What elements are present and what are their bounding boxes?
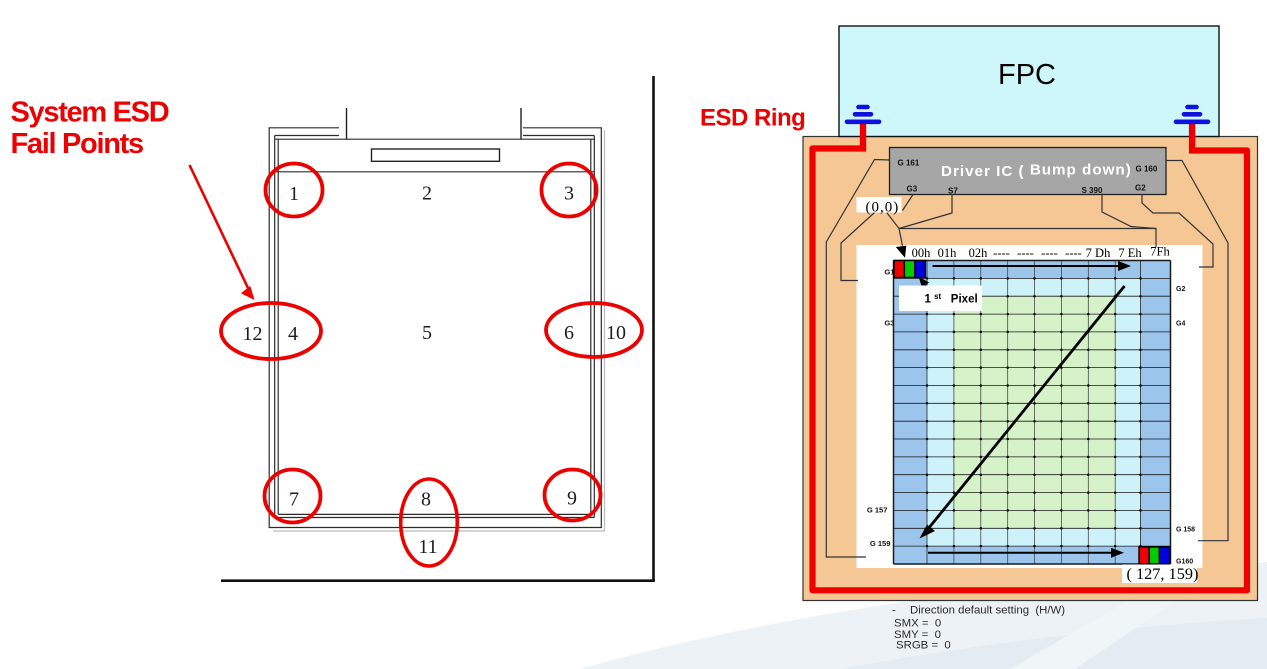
svg-text:G3: G3 — [884, 319, 894, 328]
svg-text:Direction default setting (H/: Direction default setting (H/W) — [910, 605, 1065, 617]
svg-text:7 Dh: 7 Dh — [1086, 246, 1111, 260]
svg-text:Fail Points: Fail Points — [11, 128, 144, 160]
svg-text:G 157: G 157 — [867, 506, 888, 515]
svg-text:SMX = 0: SMX = 0 — [894, 618, 941, 630]
svg-text:12: 12 — [243, 323, 263, 345]
svg-text:1: 1 — [289, 183, 299, 205]
svg-text:FPC: FPC — [998, 59, 1056, 91]
svg-text:----: ---- — [1017, 246, 1034, 260]
svg-text:9: 9 — [567, 488, 577, 510]
svg-text:00h: 00h — [912, 246, 932, 260]
svg-text:System ESD: System ESD — [11, 97, 169, 129]
svg-text:G2: G2 — [1176, 286, 1185, 293]
svg-text:11: 11 — [418, 536, 437, 558]
svg-text:G1: G1 — [884, 268, 895, 277]
svg-text:-: - — [892, 605, 896, 617]
svg-text:ESD Ring: ESD Ring — [700, 105, 805, 132]
svg-text:S7: S7 — [948, 187, 958, 196]
svg-text:01h: 01h — [938, 246, 958, 260]
svg-text:3: 3 — [564, 183, 574, 205]
svg-text:G 161: G 161 — [898, 159, 920, 168]
svg-text:6: 6 — [564, 322, 574, 344]
svg-text:10: 10 — [606, 322, 626, 344]
svg-text:7 Eh: 7 Eh — [1118, 246, 1142, 260]
svg-text:SRGB = 0: SRGB = 0 — [896, 640, 951, 652]
svg-text:5: 5 — [422, 322, 432, 344]
svg-text:S 390: S 390 — [1082, 186, 1103, 195]
svg-text:G4: G4 — [1176, 321, 1185, 328]
svg-text:----: ---- — [1041, 246, 1058, 260]
svg-text:G3: G3 — [907, 185, 918, 194]
svg-text:4: 4 — [288, 323, 298, 345]
svg-text:Driver IC ( Bump down): Driver IC ( Bump down) — [941, 161, 1132, 180]
svg-text:G2: G2 — [1135, 184, 1146, 193]
svg-text:1 st Pixel: 1 st Pixel — [925, 292, 978, 306]
svg-text:(0,0): (0,0) — [866, 200, 900, 216]
svg-text:02h: 02h — [969, 246, 989, 260]
svg-text:2: 2 — [422, 183, 432, 205]
svg-text:G 158: G 158 — [1176, 527, 1195, 534]
svg-text:----: ---- — [993, 246, 1010, 260]
svg-text:G 160: G 160 — [1136, 165, 1158, 174]
svg-text:G 159: G 159 — [870, 539, 891, 548]
svg-text:8: 8 — [421, 489, 431, 511]
svg-text:7: 7 — [289, 489, 299, 511]
svg-text:7Fh: 7Fh — [1150, 245, 1170, 259]
svg-text:----: ---- — [1065, 246, 1082, 260]
svg-text:( 127, 159): ( 127, 159) — [1127, 564, 1199, 583]
